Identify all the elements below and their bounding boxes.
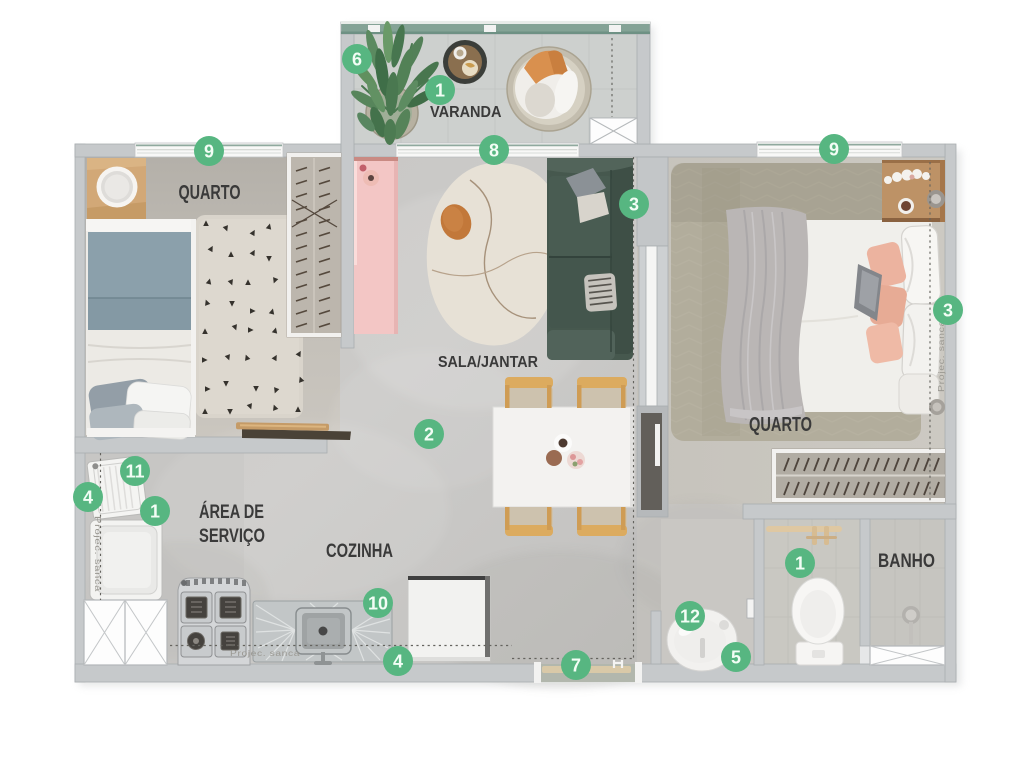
svg-text:COZINHA: COZINHA: [326, 541, 393, 562]
svg-text:5: 5: [731, 648, 741, 668]
svg-text:12: 12: [680, 607, 700, 627]
svg-text:9: 9: [829, 140, 839, 160]
svg-text:1: 1: [795, 554, 805, 574]
svg-text:9: 9: [204, 142, 214, 162]
svg-text:1: 1: [150, 502, 160, 522]
svg-text:1: 1: [435, 81, 445, 101]
svg-text:11: 11: [125, 462, 144, 482]
svg-text:7: 7: [571, 656, 581, 676]
svg-text:3: 3: [943, 301, 953, 321]
svg-text:3: 3: [629, 195, 639, 215]
svg-text:2: 2: [424, 425, 434, 445]
svg-text:SALA/JANTAR: SALA/JANTAR: [438, 354, 538, 371]
svg-text:ÁREA DE: ÁREA DE: [199, 501, 264, 523]
svg-text:Projec. sanca: Projec. sanca: [93, 516, 103, 592]
svg-text:Projec. sanca: Projec. sanca: [230, 648, 300, 658]
svg-text:QUARTO: QUARTO: [179, 182, 241, 204]
svg-text:QUARTO: QUARTO: [749, 414, 812, 436]
svg-text:8: 8: [489, 141, 499, 161]
svg-text:Projec. sanca: Projec. sanca: [936, 320, 946, 392]
svg-text:10: 10: [368, 594, 388, 614]
svg-text:SERVIÇO: SERVIÇO: [199, 526, 265, 547]
svg-text:VARANDA: VARANDA: [430, 104, 502, 121]
svg-text:4: 4: [83, 488, 93, 508]
svg-text:BANHO: BANHO: [878, 551, 935, 572]
svg-text:4: 4: [393, 652, 403, 672]
svg-text:6: 6: [352, 50, 362, 70]
